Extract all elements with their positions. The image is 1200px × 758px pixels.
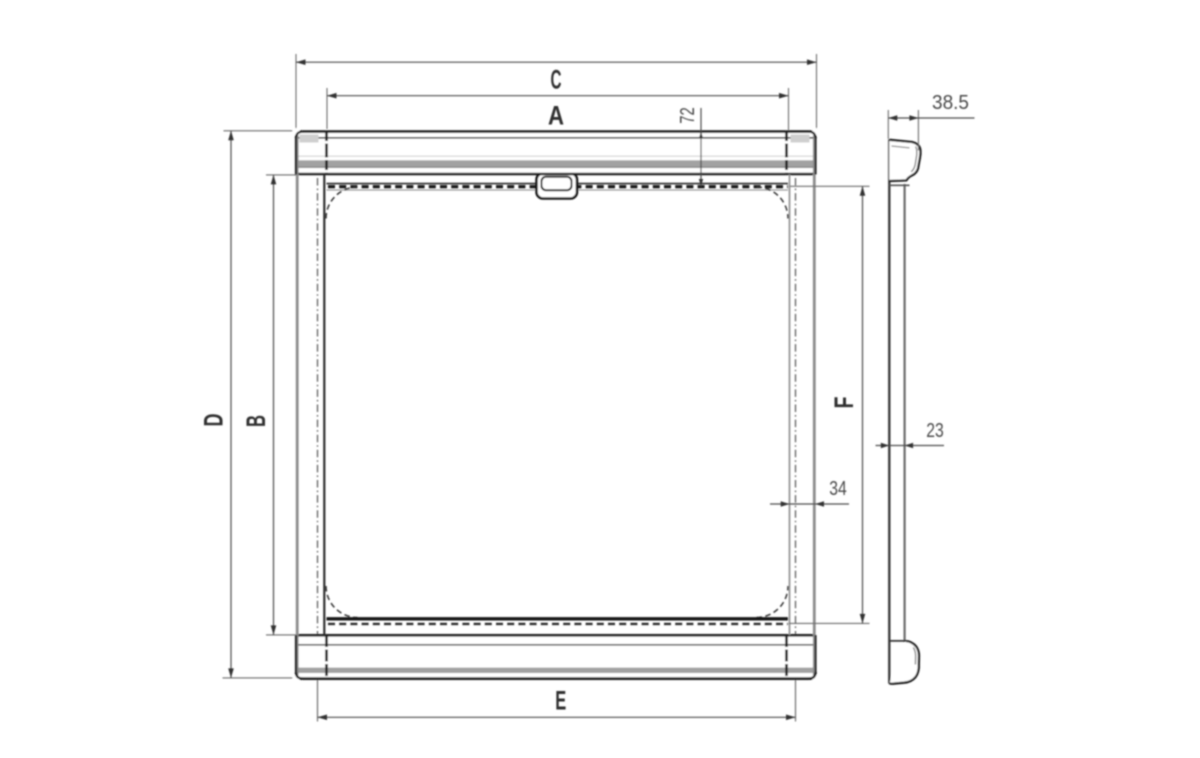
svg-text:F: F xyxy=(829,397,859,409)
svg-text:23: 23 xyxy=(926,420,944,442)
svg-text:D: D xyxy=(199,414,229,427)
svg-text:A: A xyxy=(548,101,564,131)
svg-text:38.5: 38.5 xyxy=(932,92,969,114)
svg-text:C: C xyxy=(551,65,562,95)
svg-text:72: 72 xyxy=(677,107,699,124)
svg-text:34: 34 xyxy=(829,478,847,500)
svg-text:B: B xyxy=(241,415,271,427)
svg-text:E: E xyxy=(555,686,566,716)
